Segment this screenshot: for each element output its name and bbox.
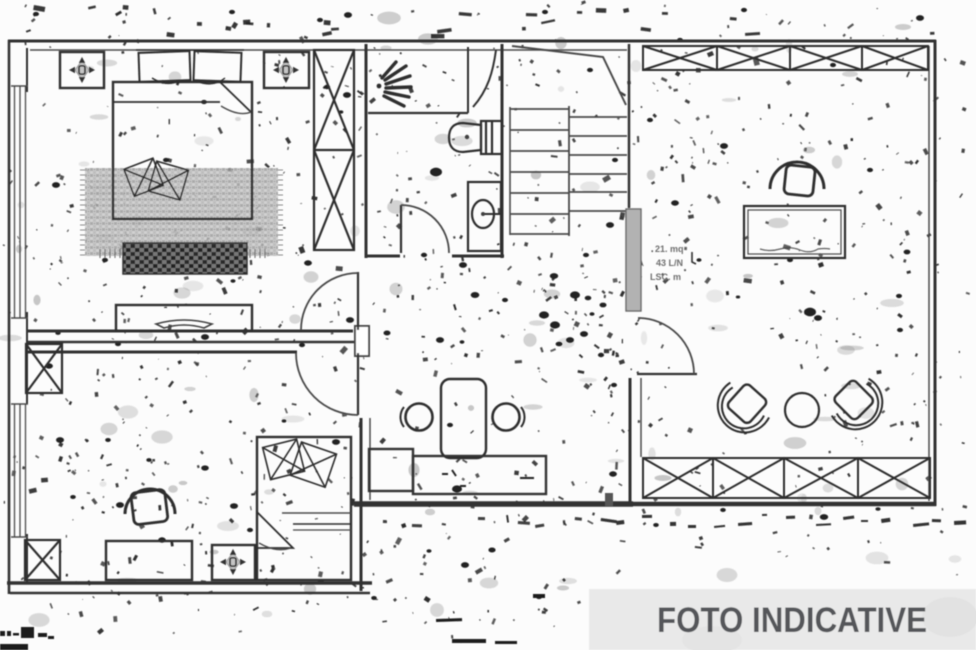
svg-text:LSC. m: LSC. m bbox=[650, 272, 681, 282]
svg-text:43 L/N: 43 L/N bbox=[656, 258, 683, 268]
svg-text:FOTO INDICATIVE: FOTO INDICATIVE bbox=[657, 600, 927, 640]
svg-text:21. mq: 21. mq bbox=[655, 244, 684, 254]
